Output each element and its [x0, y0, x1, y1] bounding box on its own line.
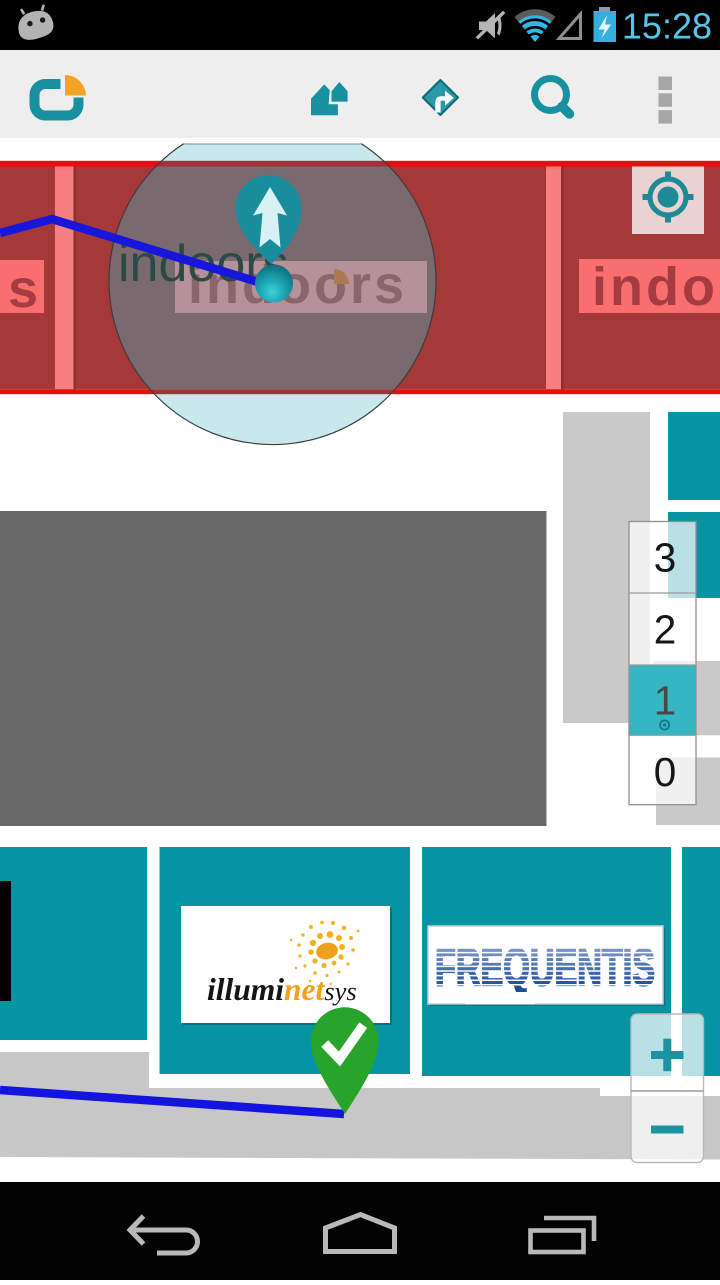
svg-text:3: 3	[654, 535, 677, 581]
svg-text:15:28: 15:28	[622, 6, 712, 47]
svg-text:0: 0	[654, 749, 677, 795]
svg-text:illuminetsys: illuminetsys	[207, 972, 357, 1007]
svg-text:s: s	[8, 259, 38, 319]
svg-text:indoors: indoors	[592, 257, 720, 317]
svg-text:2: 2	[654, 607, 677, 653]
svg-text:1: 1	[654, 678, 677, 724]
